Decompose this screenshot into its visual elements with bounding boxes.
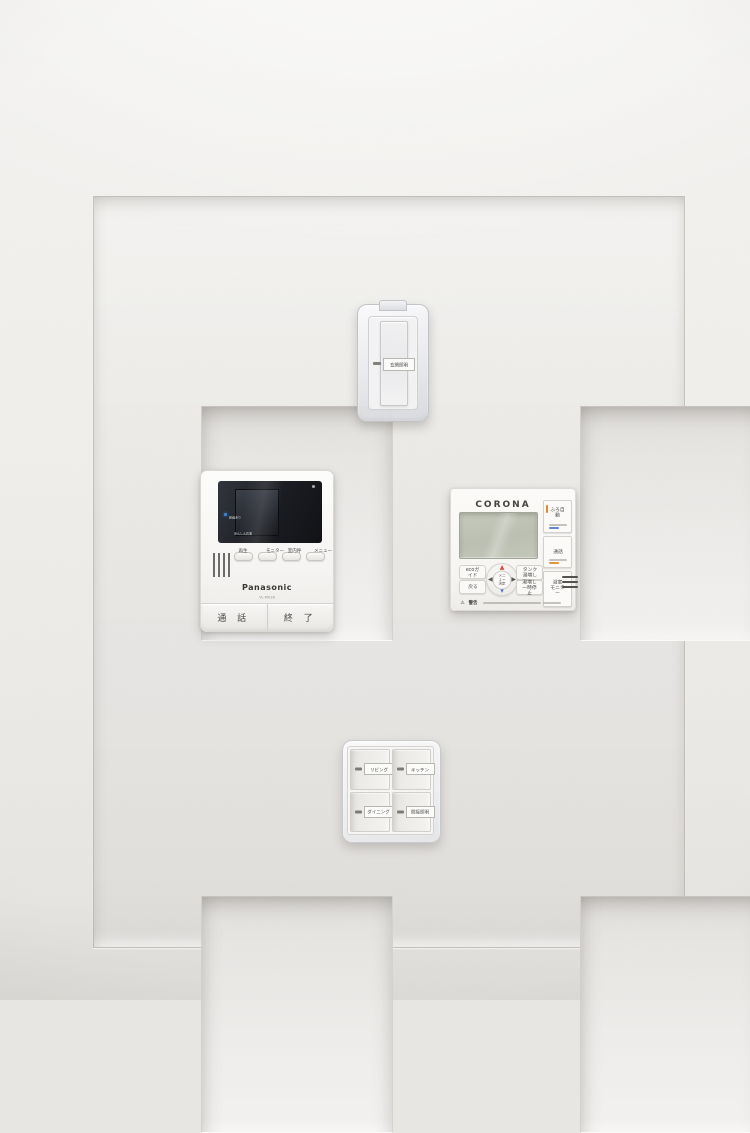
remote-lcd bbox=[459, 512, 538, 559]
wall: 玄関照明 録画あり あんしん応答 再生 モニター bbox=[0, 0, 750, 1000]
switch-dining[interactable]: ダイニング bbox=[350, 792, 390, 833]
speaker-grille-icon bbox=[213, 553, 233, 577]
talk-button[interactable]: 通 話 bbox=[201, 604, 268, 631]
play-button[interactable]: 再生 bbox=[233, 545, 253, 561]
wall-niche-top-right bbox=[580, 406, 750, 641]
light-switch-panel: リビング キッチン ダイニング 間接照明 bbox=[342, 740, 441, 843]
intercom-screen: 録画あり あんしん応答 bbox=[218, 481, 322, 543]
intercom-lcd bbox=[235, 489, 279, 536]
warning-icon: ⚠ bbox=[460, 600, 464, 605]
pilot-lamp-window bbox=[355, 768, 362, 771]
switch-panel-plate: リビング キッチン ダイニング 間接照明 bbox=[347, 746, 434, 835]
tank-boost-button[interactable]: タンク 湯増し bbox=[516, 565, 543, 580]
end-button[interactable]: 終 了 bbox=[268, 604, 334, 631]
pilot-lamp-window bbox=[397, 810, 404, 813]
menu-button[interactable]: メニュー bbox=[305, 545, 325, 561]
warning-label: 警告 bbox=[469, 599, 478, 605]
switch-indirect-light[interactable]: 間接照明 bbox=[392, 792, 432, 833]
remote-lower-controls: ecoガイド 戻る ▲ ▼ ◀ ▶ メニュー 決定 タンク 湯増し 湯増し 一時… bbox=[459, 565, 569, 595]
monitor-button[interactable]: モニター bbox=[257, 545, 277, 561]
warning-fine-print bbox=[483, 602, 541, 604]
warning-row: ⚠ 警告 bbox=[459, 597, 569, 608]
led-indicator bbox=[224, 513, 227, 516]
model-number: VL-MV28 bbox=[237, 595, 296, 599]
switch-label-tag: リビング bbox=[364, 763, 393, 775]
intercom-button-row: 再生 モニター 室内呼 メニュー bbox=[233, 545, 325, 561]
boost-pause-button[interactable]: 湯増し 一時停止 bbox=[516, 580, 543, 595]
pilot-lamp-window bbox=[355, 810, 362, 813]
indicator-answer: あんしん応答 bbox=[219, 521, 234, 540]
covered-switch: 玄関照明 bbox=[357, 304, 429, 422]
water-heater-remote: CORONA ふろ自動 通話 浴室 モニター ecoガイド 戻る bbox=[450, 488, 576, 611]
brand-logo: CORONA bbox=[465, 500, 541, 510]
switch-label-tag: 間接照明 bbox=[406, 806, 435, 818]
dpad[interactable]: ▲ ▼ ◀ ▶ メニュー 決定 bbox=[486, 563, 518, 596]
switch-label-tag: ダイニング bbox=[364, 806, 393, 818]
bath-auto-button[interactable]: ふろ自動 bbox=[543, 500, 572, 533]
indicator-recording: 録画あり bbox=[219, 505, 234, 524]
mic-hole-icon bbox=[312, 485, 315, 488]
speaker-lines-icon bbox=[562, 573, 578, 591]
intercom-main-buttons: 通 話 終 了 bbox=[201, 603, 333, 631]
wall-niche-bottom-left bbox=[201, 896, 393, 1133]
wall-niche-bottom-right bbox=[580, 896, 750, 1133]
switch-plate: 玄関照明 bbox=[368, 316, 418, 410]
brand-logo: Panasonic bbox=[201, 583, 333, 592]
pilot-lamp-window bbox=[373, 362, 381, 365]
pilot-lamp-window bbox=[397, 768, 404, 771]
talk-button[interactable]: 通話 bbox=[543, 536, 572, 568]
switch-label-tag: キッチン bbox=[406, 763, 435, 775]
switch-label-tag: 玄関照明 bbox=[383, 358, 415, 371]
back-button[interactable]: 戻る bbox=[459, 580, 486, 594]
switch-kitchen[interactable]: キッチン bbox=[392, 749, 432, 790]
switch-living[interactable]: リビング bbox=[350, 749, 390, 790]
eco-guide-button[interactable]: ecoガイド bbox=[459, 565, 486, 579]
switch-label: 玄関照明 bbox=[390, 361, 408, 368]
auto-indicator-icon bbox=[546, 505, 548, 513]
cover-hinge-tab bbox=[379, 300, 407, 311]
warning-fine-print bbox=[543, 602, 561, 604]
intercom-monitor: 録画あり あんしん応答 再生 モニター 室内呼 メニュー bbox=[200, 470, 334, 632]
menu-confirm-button[interactable]: メニュー 決定 bbox=[493, 570, 512, 589]
